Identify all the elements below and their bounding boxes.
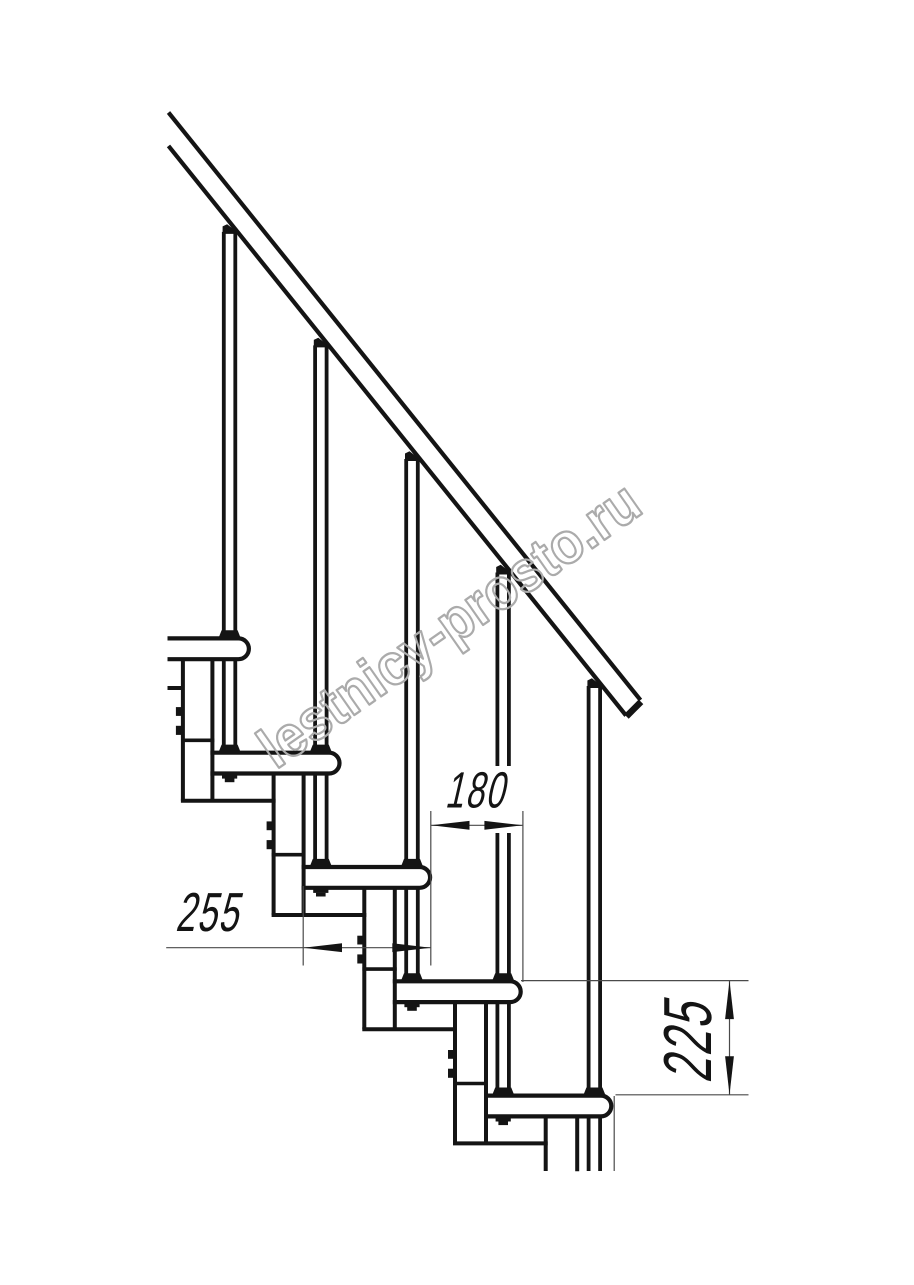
svg-text:225: 225 <box>651 989 726 1087</box>
